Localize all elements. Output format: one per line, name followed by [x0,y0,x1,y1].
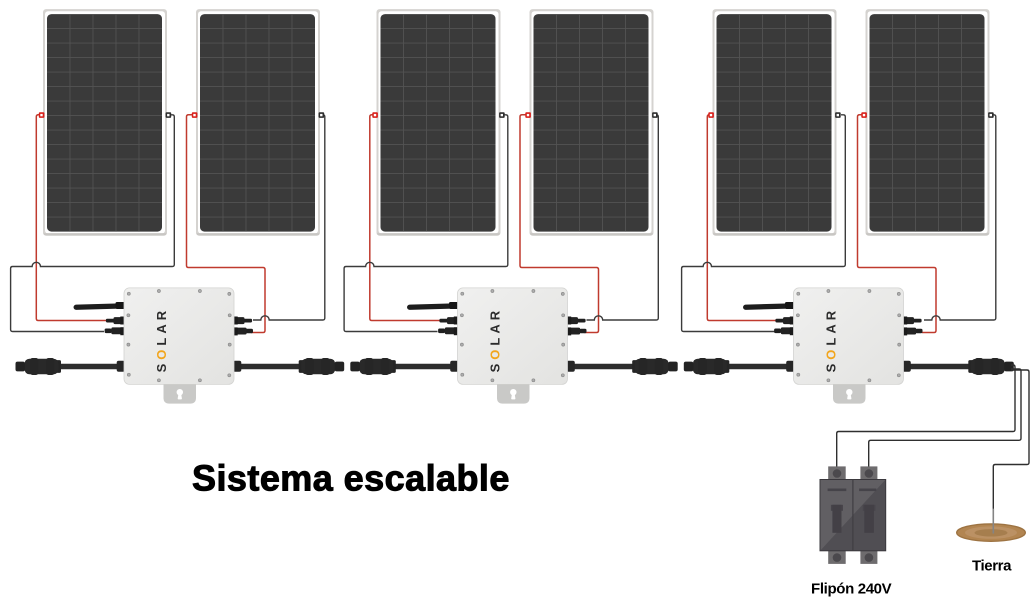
svg-text:Flipón 240V: Flipón 240V [811,581,892,598]
svg-text:Tierra: Tierra [972,557,1012,574]
svg-text:Sistema escalable: Sistema escalable [192,458,510,499]
